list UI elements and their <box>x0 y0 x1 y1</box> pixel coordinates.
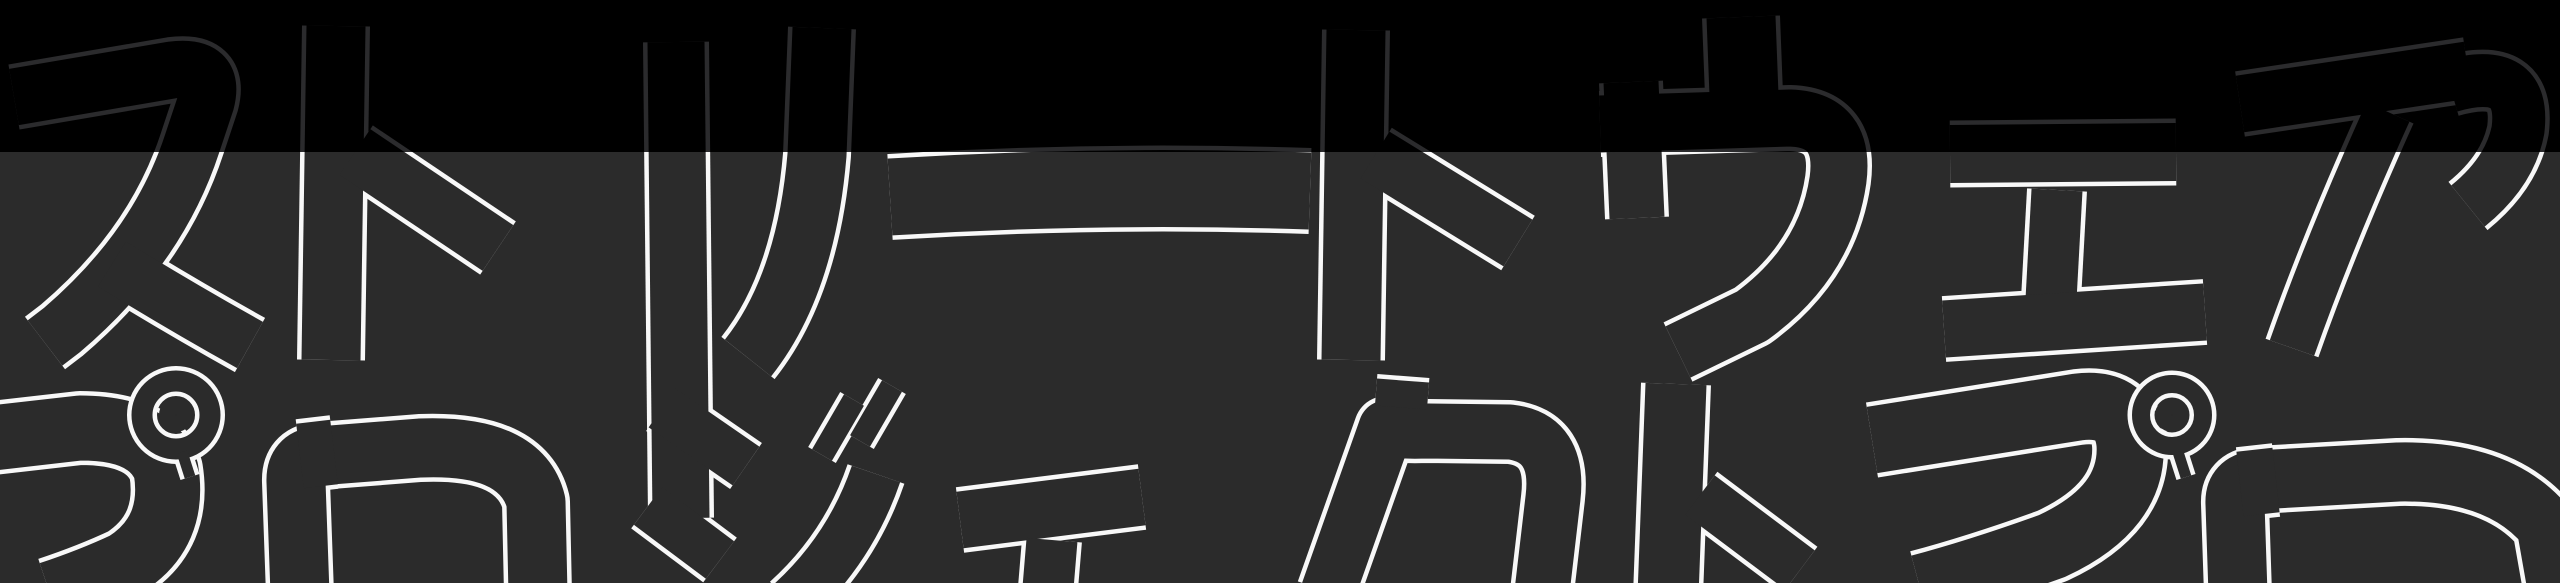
hero-banner: ストリートウェア プロジェクトプロ <box>0 0 2560 583</box>
top-band-background <box>0 0 2560 152</box>
hero-typography-svg <box>0 0 2560 583</box>
